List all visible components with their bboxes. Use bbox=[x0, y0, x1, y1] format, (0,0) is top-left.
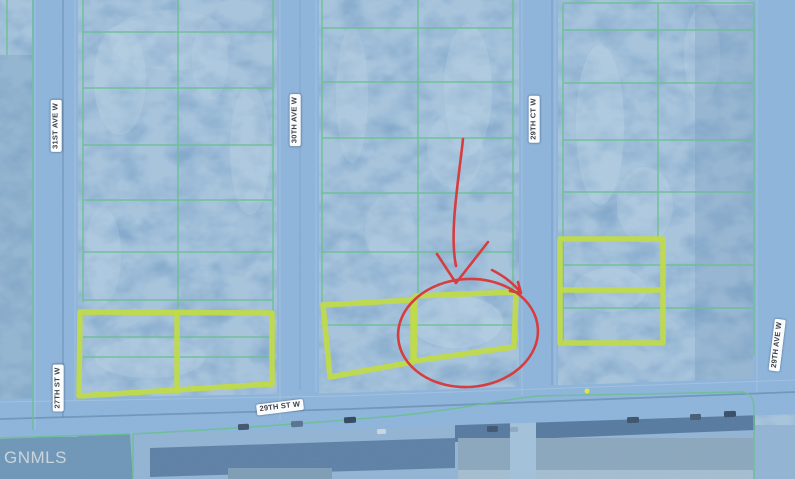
map-canvas[interactable]: 31ST AVE W 30TH AVE W 29TH CT W 29TH AVE… bbox=[0, 0, 795, 479]
street-label-31st-ave-w: 31ST AVE W bbox=[51, 100, 62, 152]
grain-overlay bbox=[0, 0, 795, 479]
aerial-imagery bbox=[0, 0, 795, 479]
street-label-27th-st-w: 27TH ST W bbox=[53, 365, 64, 412]
watermark-gnmls: GNMLS bbox=[4, 448, 67, 468]
street-label-29th-ct-w: 29TH CT W bbox=[529, 95, 540, 142]
street-label-30th-ave-w: 30TH AVE W bbox=[290, 94, 301, 146]
